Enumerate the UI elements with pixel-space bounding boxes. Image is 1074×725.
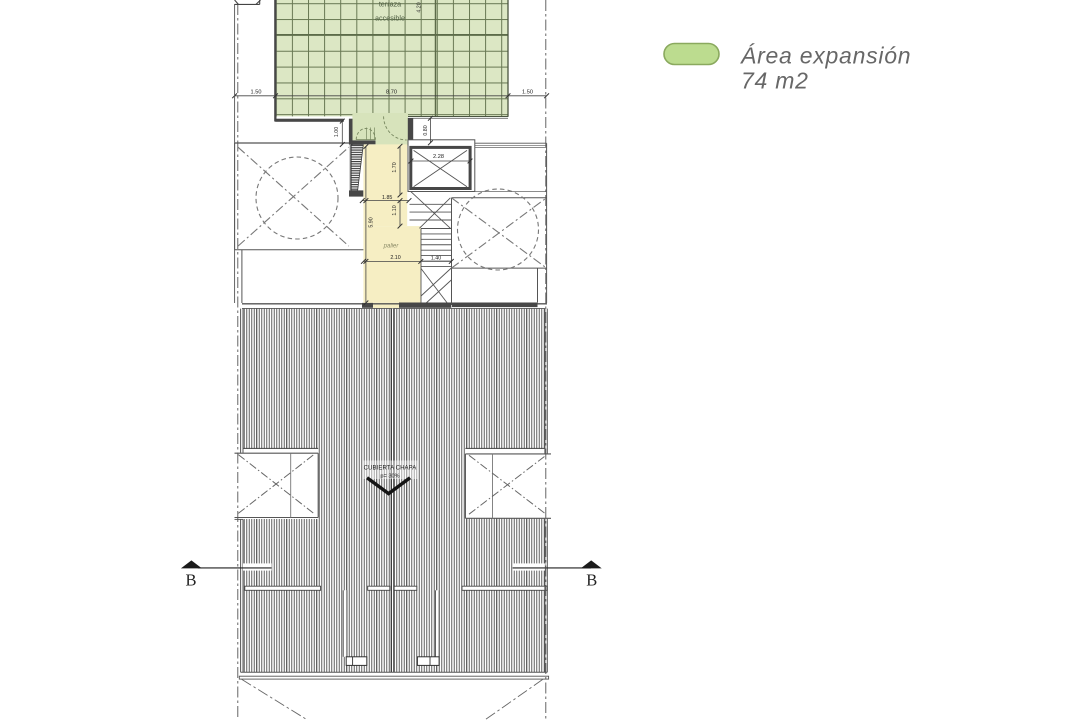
svg-text:1.50: 1.50	[251, 90, 262, 96]
svg-text:Área expansión: Área expansión	[740, 43, 911, 69]
svg-text:1.40: 1.40	[431, 256, 441, 262]
svg-text:0.80: 0.80	[423, 125, 429, 135]
svg-text:accesible: accesible	[375, 14, 405, 23]
svg-text:terraza: terraza	[379, 0, 401, 9]
svg-text:5.90: 5.90	[368, 217, 374, 227]
svg-text:74 m2: 74 m2	[741, 68, 809, 94]
svg-text:1.50: 1.50	[522, 90, 533, 96]
svg-text:4.20: 4.20	[417, 2, 423, 12]
svg-text:1.70: 1.70	[392, 162, 398, 172]
svg-text:1.85: 1.85	[382, 195, 392, 201]
svg-text:B: B	[586, 571, 597, 590]
svg-text:palier: palier	[383, 244, 400, 250]
svg-text:B: B	[185, 571, 196, 590]
svg-text:2.28: 2.28	[433, 154, 444, 160]
svg-text:CUBIERTA CHAPA: CUBIERTA CHAPA	[364, 466, 417, 472]
svg-text:2.10: 2.10	[390, 255, 400, 261]
svg-text:8.70: 8.70	[386, 89, 397, 95]
svg-text:p= 30%: p= 30%	[380, 473, 399, 479]
svg-text:1.10: 1.10	[392, 205, 398, 215]
svg-text:1.00: 1.00	[334, 127, 340, 137]
